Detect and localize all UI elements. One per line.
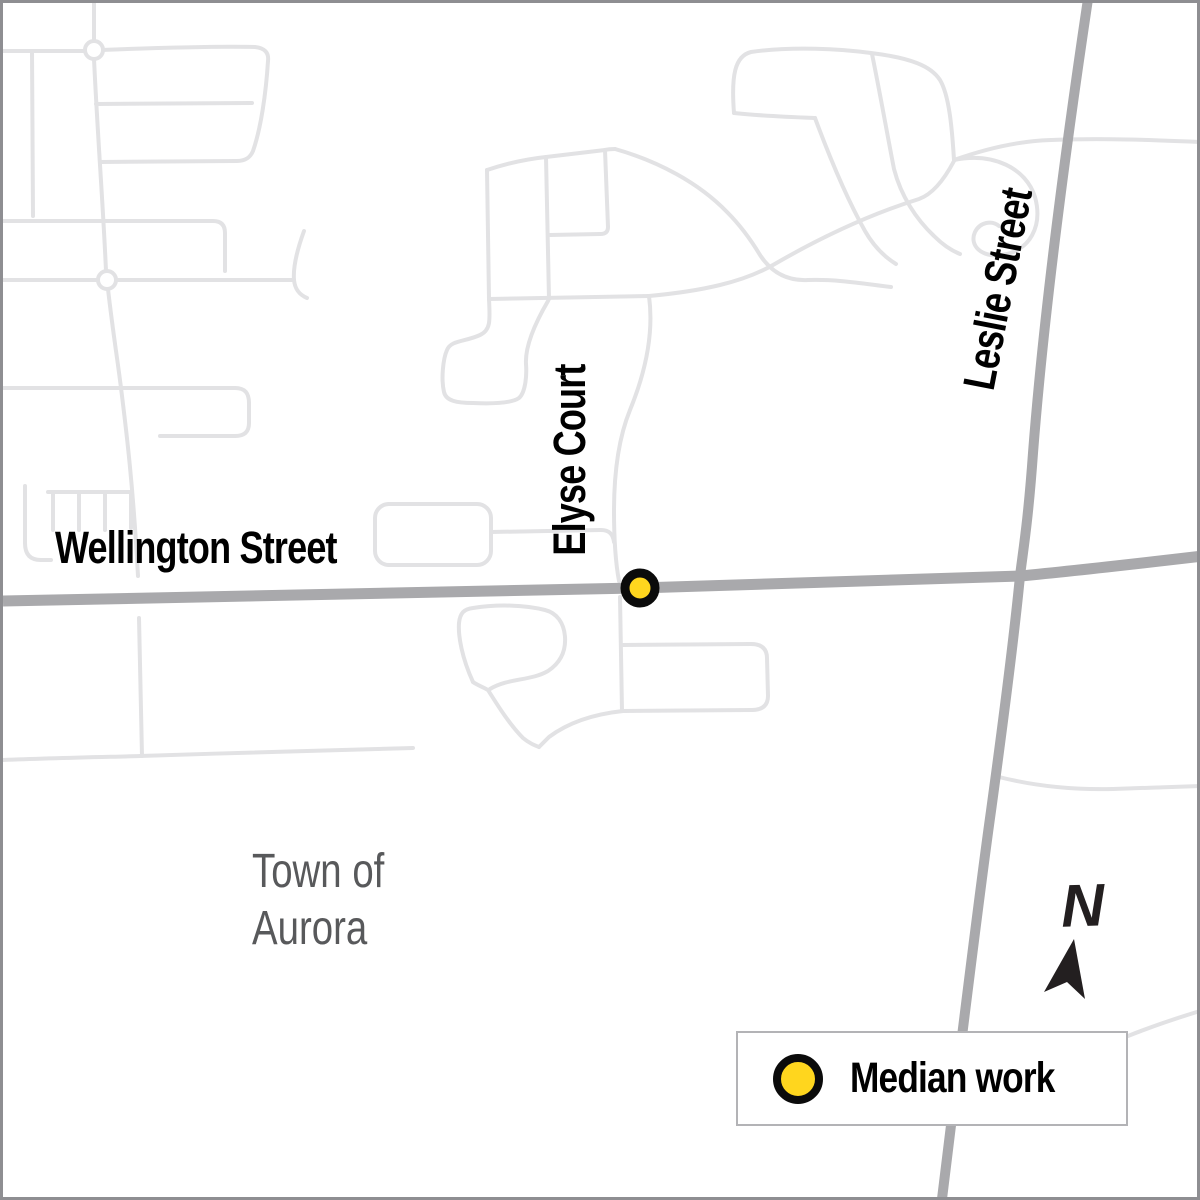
- major-roads: [3, 3, 1200, 1200]
- legend: Median work: [736, 1031, 1128, 1126]
- north-arrow-icon: [1044, 939, 1085, 999]
- median-work-legend-icon: [772, 1053, 824, 1105]
- leslie-street-road: [941, 3, 1088, 1200]
- north-arrow-n: N: [1060, 870, 1106, 940]
- median-work-marker: [625, 573, 655, 603]
- roads-layer: [3, 3, 1200, 1200]
- minor-roads: [3, 3, 1200, 1036]
- map-canvas: Wellington Street Elyse Court Leslie Str…: [0, 0, 1200, 1200]
- legend-item-label: Median work: [850, 1054, 1055, 1103]
- elyse-court-label: Elyse Court: [544, 364, 596, 555]
- wellington-street-label: Wellington Street: [55, 522, 337, 574]
